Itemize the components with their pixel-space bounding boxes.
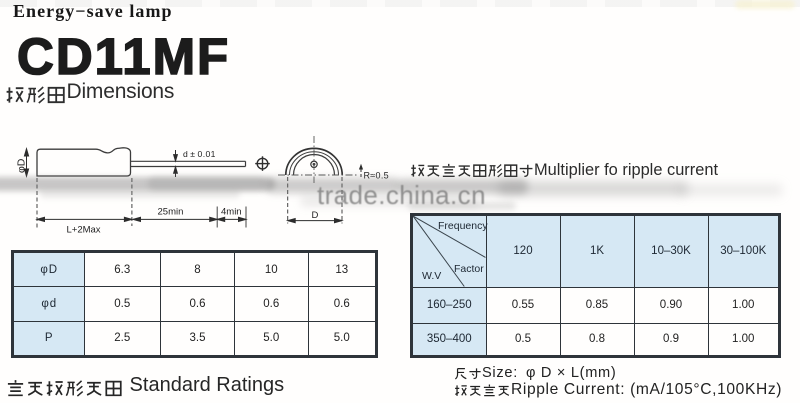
svg-text:25min: 25min	[158, 207, 184, 218]
svg-text:L+2Max: L+2Max	[67, 225, 101, 236]
svg-text:4min: 4min	[221, 207, 242, 218]
svg-text:φD: φD	[16, 158, 28, 173]
svg-text:d ± 0.01: d ± 0.01	[183, 149, 216, 159]
svg-text:D: D	[312, 210, 319, 221]
